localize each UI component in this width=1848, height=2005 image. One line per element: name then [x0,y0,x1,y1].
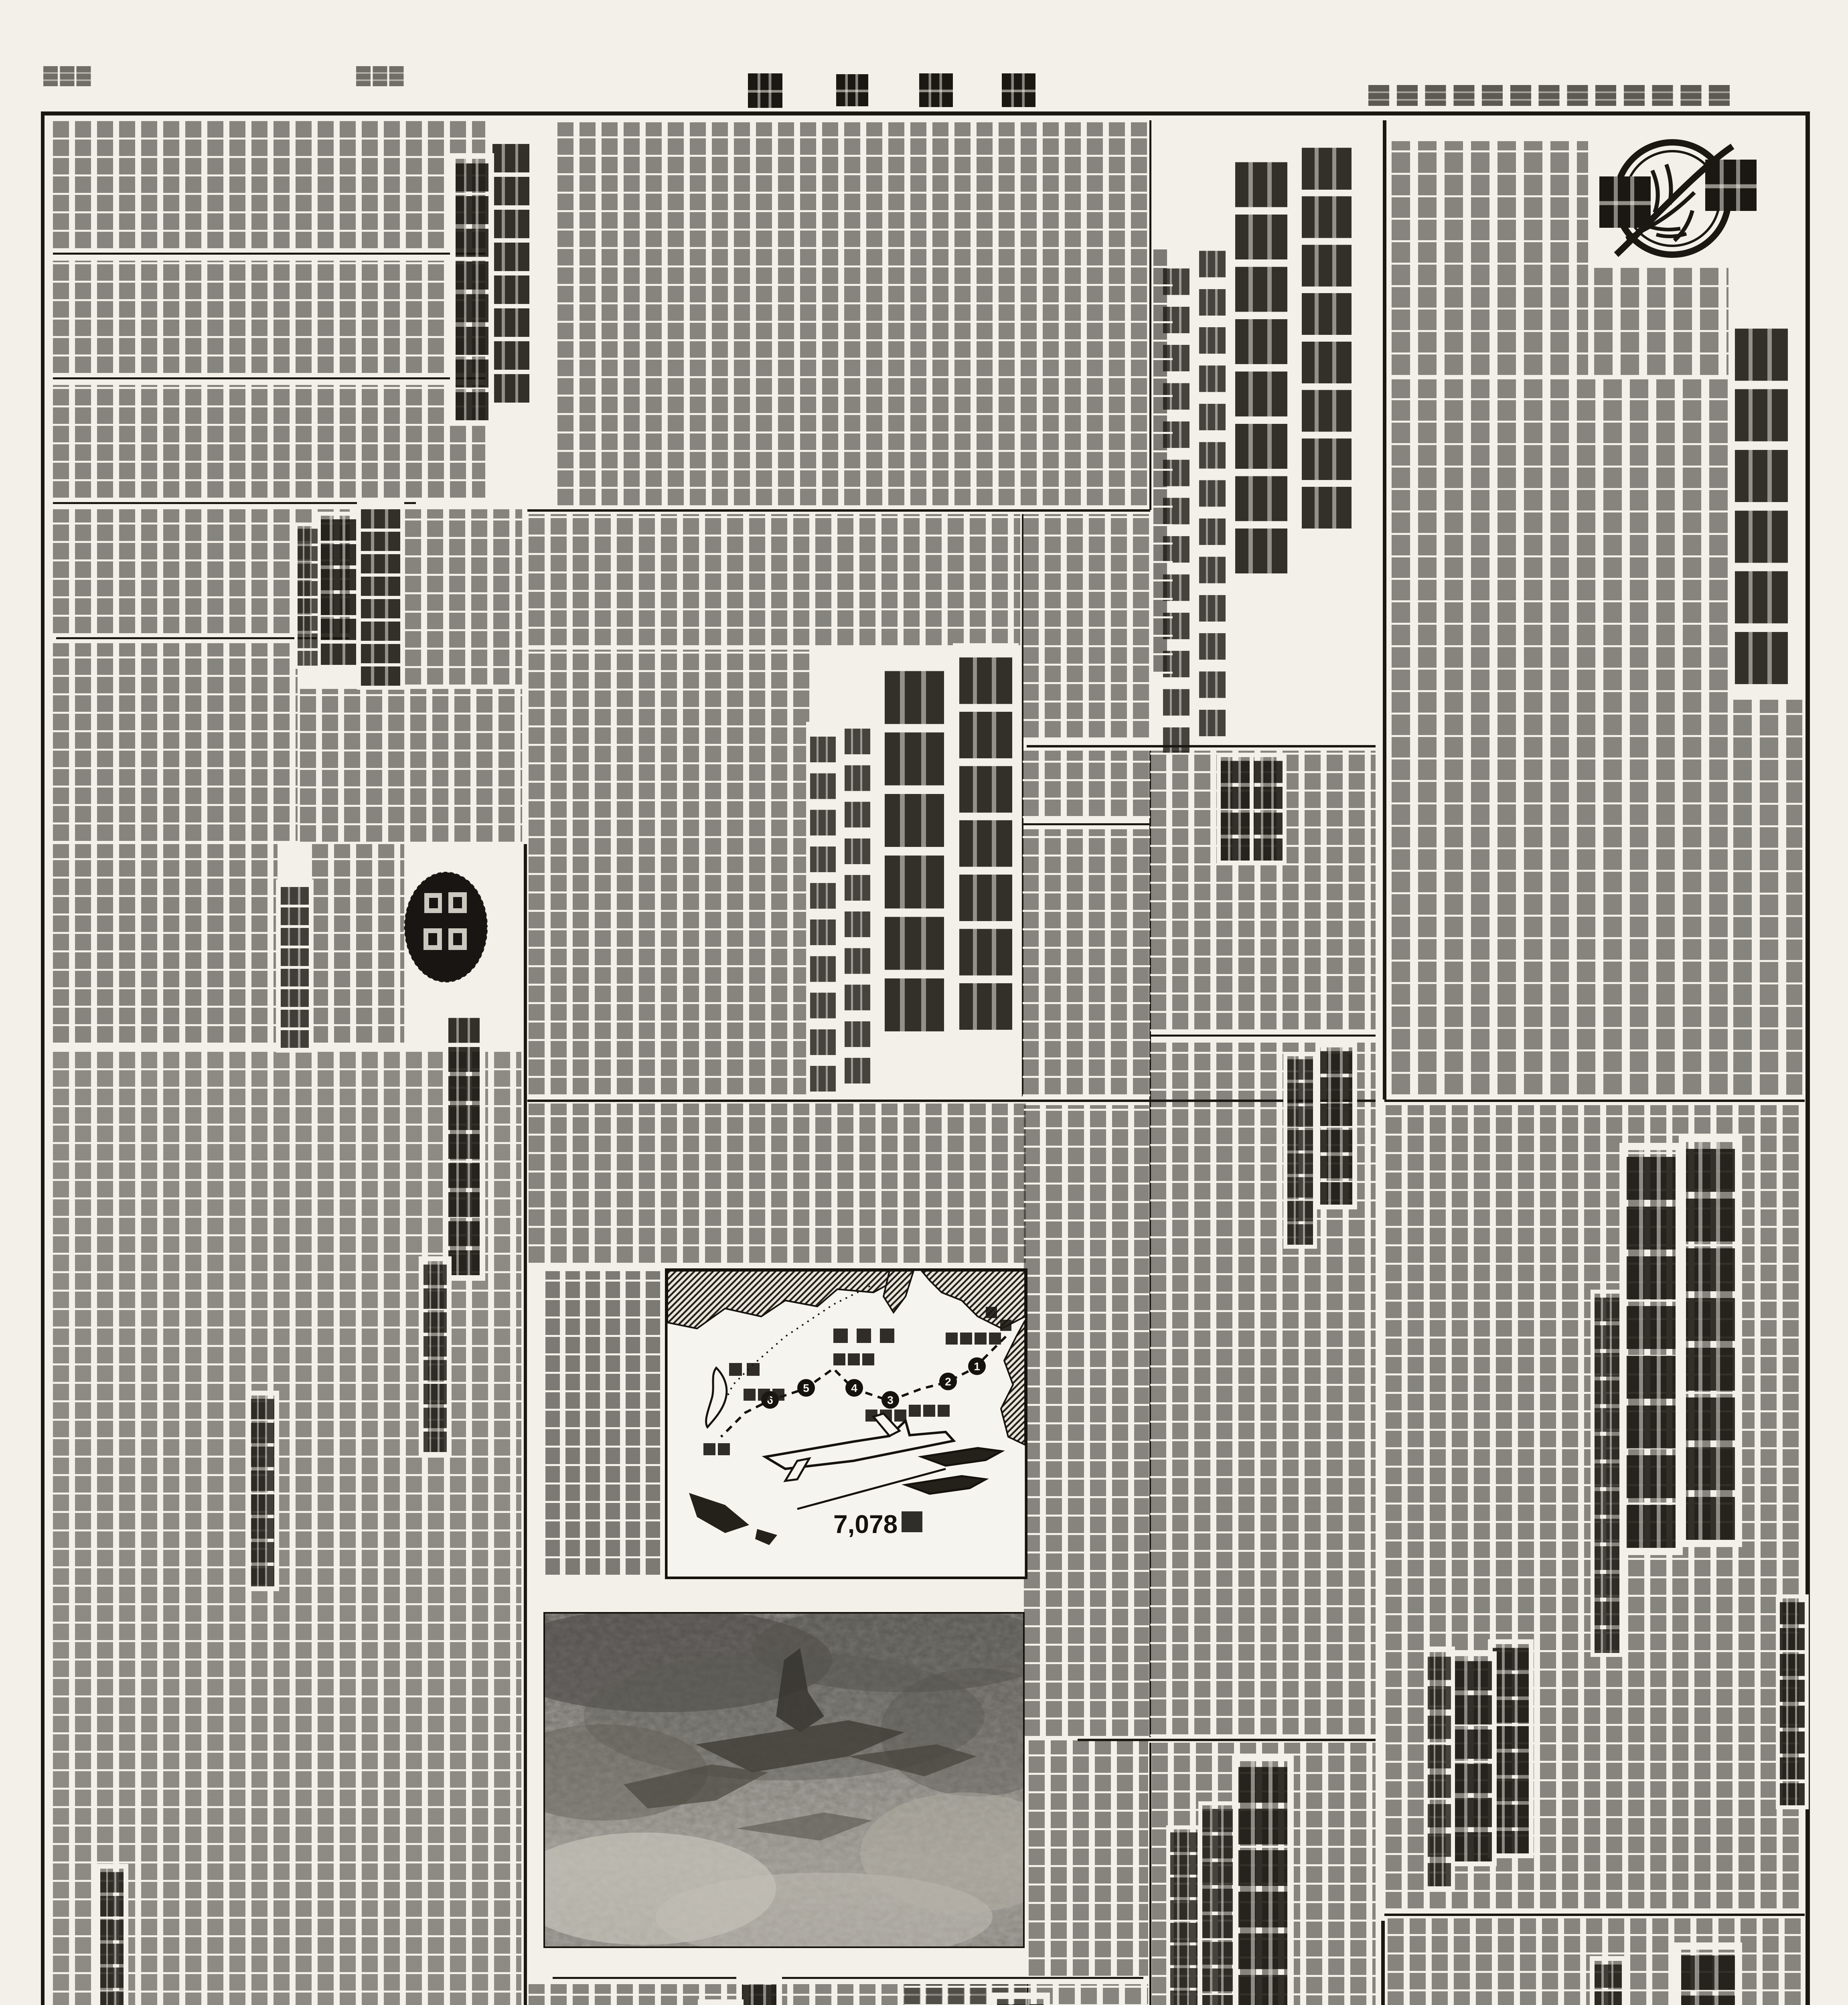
svg-text:1: 1 [974,1360,980,1373]
svg-text:5: 5 [803,1382,809,1394]
svg-text:2: 2 [945,1375,951,1388]
svg-text:3: 3 [887,1394,894,1406]
svg-text:7,078: 7,078 [833,1510,898,1539]
svg-text:4: 4 [851,1382,857,1394]
